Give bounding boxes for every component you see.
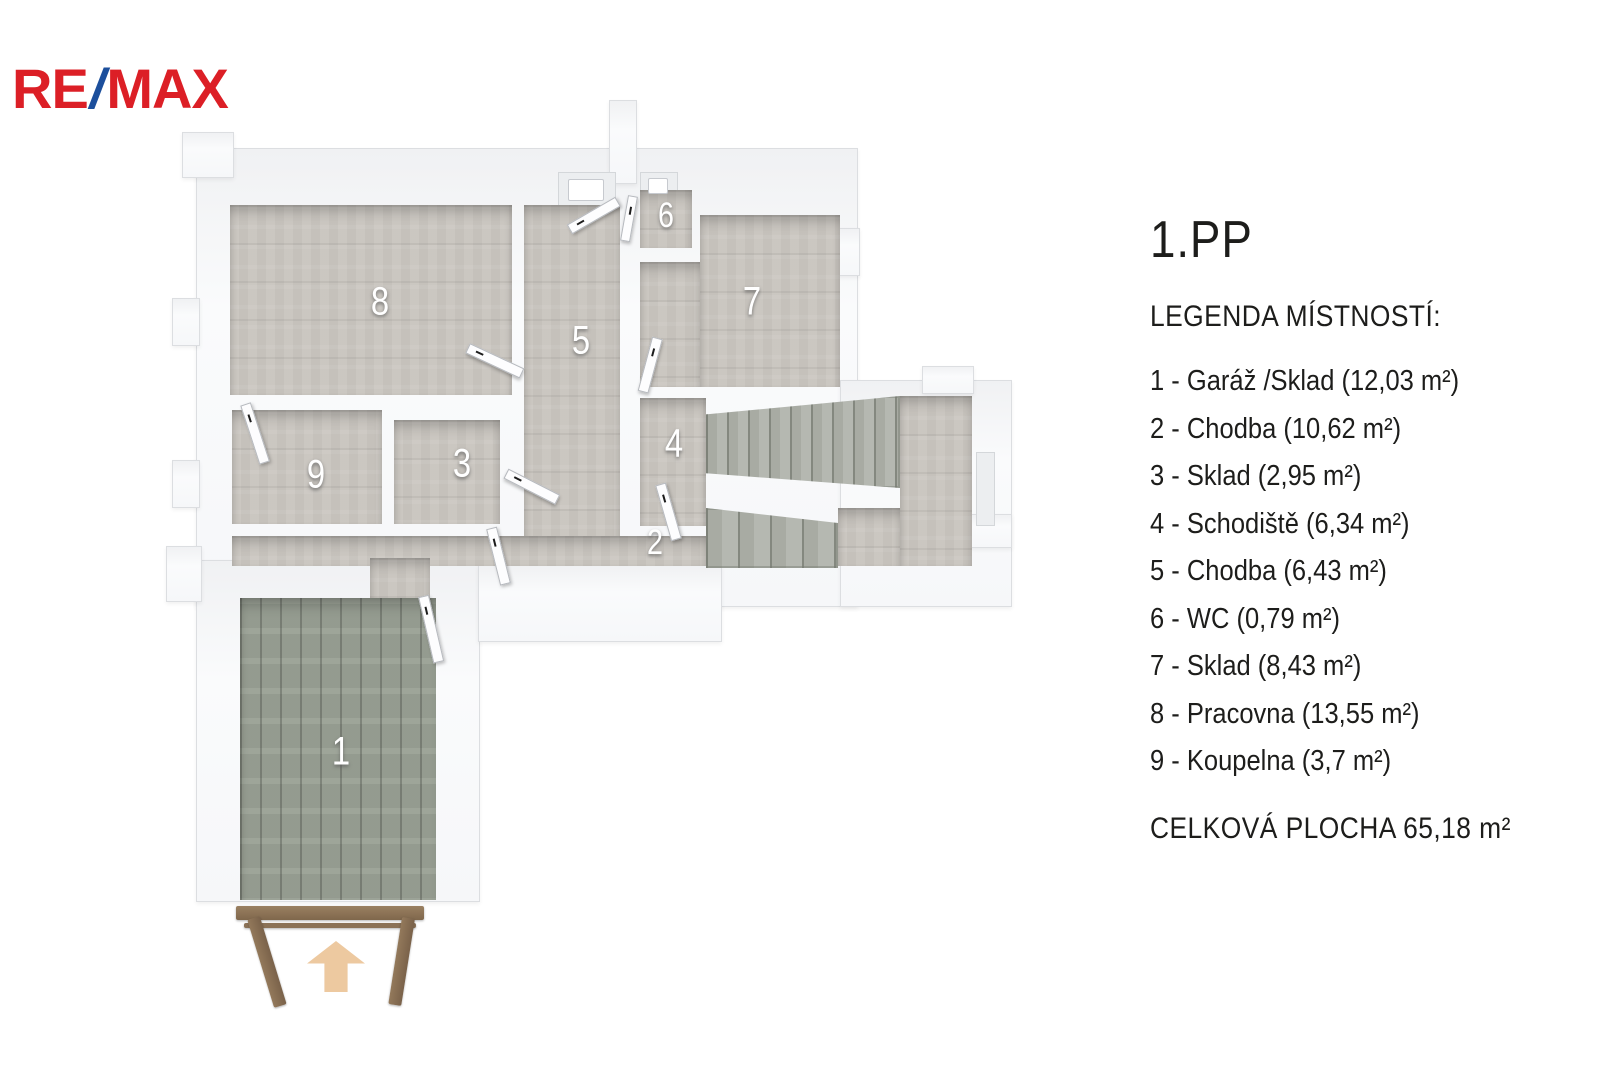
room-label-5: 5 (572, 319, 590, 364)
legend-item-5: 5 - Chodba (6,43 m²) (1150, 548, 1511, 596)
room-label-8: 8 (371, 280, 389, 325)
toilet-tank-icon (648, 178, 668, 194)
remax-logo: RE/MAX (12, 56, 228, 121)
legend-list: 1 - Garáž /Sklad (12,03 m²) 2 - Chodba (… (1150, 358, 1511, 786)
wall-pilaster-topleft (182, 132, 234, 178)
legend-item-6: 6 - WC (0,79 m²) (1150, 596, 1511, 644)
room-7-sklad-floor (700, 215, 840, 387)
entrance-frame-rail (244, 923, 416, 928)
room-label-6: 6 (658, 196, 674, 236)
room-label-4: 4 (665, 422, 683, 467)
wall-pilaster-annex-top (922, 366, 974, 394)
niche-annex-window (976, 452, 995, 526)
garage-entry-floor (370, 558, 430, 600)
sink-icon (568, 179, 604, 201)
room-label-3: 3 (453, 442, 471, 487)
legend-item-3: 3 - Sklad (2,95 m²) (1150, 453, 1511, 501)
entrance-arrow-icon (307, 941, 365, 992)
logo-slash: / (88, 57, 107, 120)
stair-landing-lower-floor (838, 508, 900, 566)
room-5-chodba-floor (524, 205, 620, 560)
room-2-chodba-floor (232, 536, 706, 566)
entrance-frame-left-leaf (247, 916, 286, 1008)
room-label-9: 9 (307, 453, 325, 498)
entrance-frame-right-leaf (388, 917, 415, 1006)
legend-item-2: 2 - Chodba (10,62 m²) (1150, 406, 1511, 454)
room-label-2: 2 (647, 523, 663, 563)
room-label-1: 1 (332, 730, 350, 775)
legend-heading: LEGENDA MÍSTNOSTÍ: (1150, 300, 1511, 334)
legend-item-1: 1 - Garáž /Sklad (12,03 m²) (1150, 358, 1511, 406)
wall-pilaster-left-c (166, 546, 202, 602)
legend-panel: 1.PP LEGENDA MÍSTNOSTÍ: 1 - Garáž /Sklad… (1150, 210, 1511, 846)
entrance-frame-beam (236, 906, 424, 920)
wall-pilaster-left-a (172, 298, 200, 346)
legend-item-7: 7 - Sklad (8,43 m²) (1150, 643, 1511, 691)
logo-re-text: RE (12, 57, 88, 120)
floorplan-page: RE/MAX (0, 0, 1600, 1066)
wall-south-extension (478, 565, 722, 642)
legend-item-8: 8 - Pracovna (13,55 m²) (1150, 691, 1511, 739)
total-area-text: CELKOVÁ PLOCHA 65,18 m² (1150, 812, 1511, 846)
stair-landing-floor (900, 396, 972, 566)
room-label-7: 7 (743, 280, 761, 325)
legend-item-4: 4 - Schodiště (6,34 m²) (1150, 501, 1511, 549)
legend-item-9: 9 - Koupelna (3,7 m²) (1150, 738, 1511, 786)
floor-title: 1.PP (1150, 210, 1511, 270)
logo-max-text: MAX (106, 57, 227, 120)
wall-pilaster-left-b (172, 460, 200, 508)
room-3-sklad-floor (394, 420, 500, 524)
